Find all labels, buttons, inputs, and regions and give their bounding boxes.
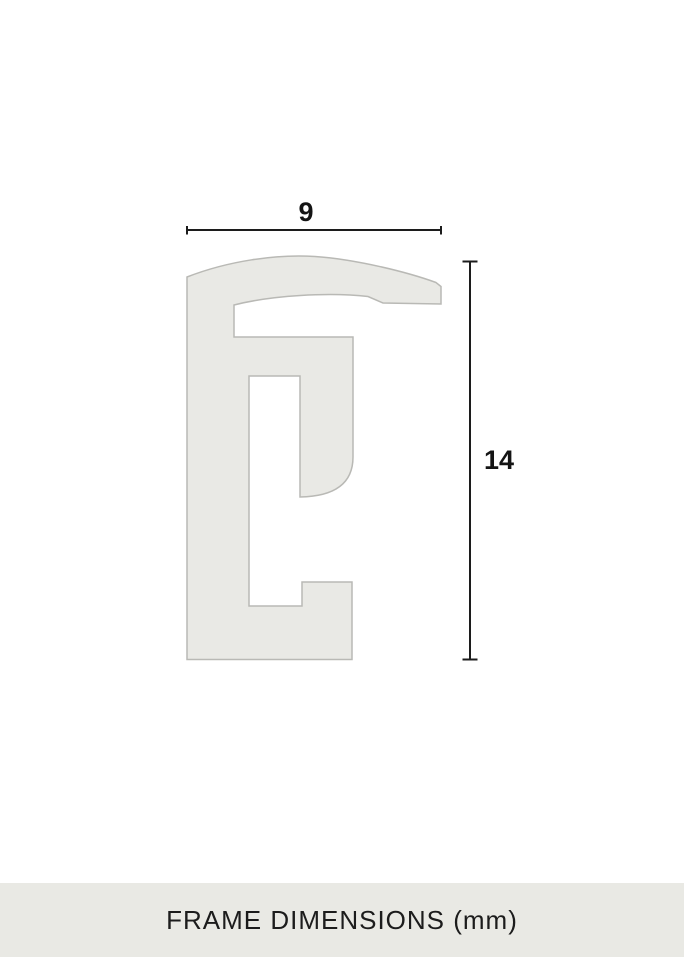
footer-title: FRAME DIMENSIONS (mm) xyxy=(166,905,518,936)
height-dimension-label: 14 xyxy=(484,445,514,475)
width-dimension: 9 xyxy=(187,197,441,235)
frame-profile-diagram: 9 14 xyxy=(0,0,684,957)
footer-bar: FRAME DIMENSIONS (mm) xyxy=(0,883,684,957)
width-dimension-label: 9 xyxy=(298,197,313,227)
frame-profile-shape xyxy=(187,256,441,659)
height-dimension: 14 xyxy=(463,262,515,660)
frame-dimensions-page: 9 14 FRAME DIMENSIONS (mm) xyxy=(0,0,684,957)
